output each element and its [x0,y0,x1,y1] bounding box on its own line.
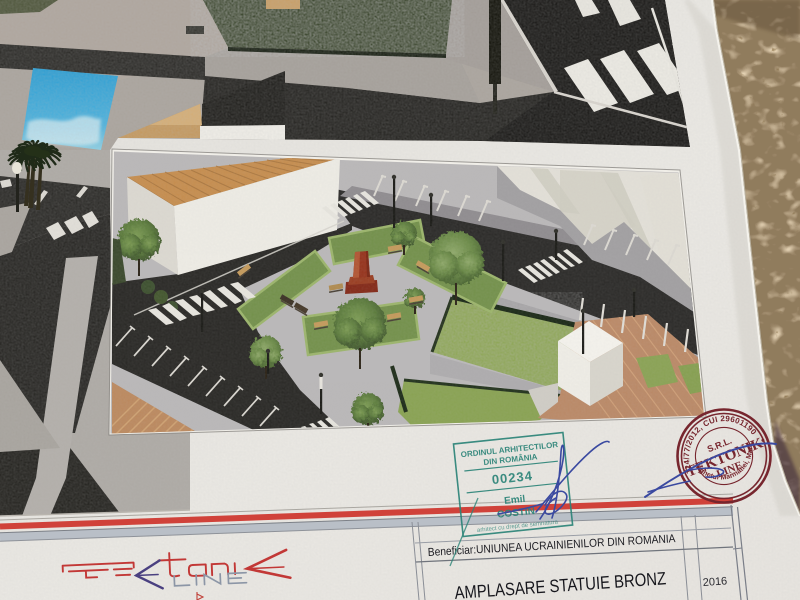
svg-text:2016: 2016 [702,575,727,589]
svg-text:Emil: Emil [504,494,526,507]
